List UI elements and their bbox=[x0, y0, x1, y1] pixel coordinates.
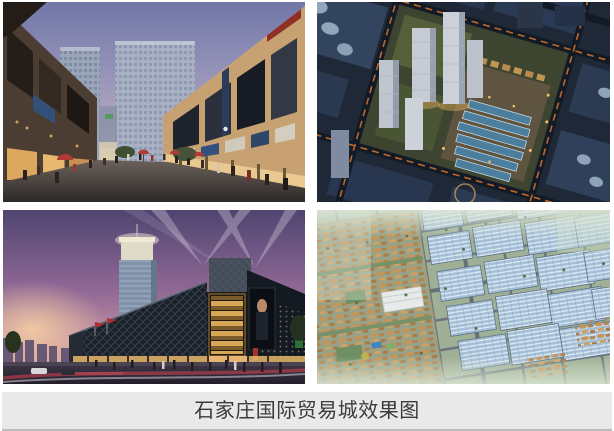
masterplan-graphic bbox=[317, 210, 610, 384]
caption-bar: 石家庄国际贸易城效果图 bbox=[2, 392, 612, 431]
caption-text: 石家庄国际贸易城效果图 bbox=[194, 392, 420, 429]
photo-masterplan-aerial bbox=[317, 210, 610, 384]
photo-aerial-complex bbox=[317, 2, 610, 202]
article-figure: 石家庄国际贸易城效果图 bbox=[0, 0, 614, 431]
photo-trade-mall-night bbox=[3, 210, 305, 384]
trade-mall-graphic bbox=[3, 210, 305, 384]
photo-shopping-street bbox=[3, 2, 305, 202]
aerial-complex-graphic bbox=[317, 2, 610, 202]
shopping-street-graphic bbox=[3, 2, 305, 202]
